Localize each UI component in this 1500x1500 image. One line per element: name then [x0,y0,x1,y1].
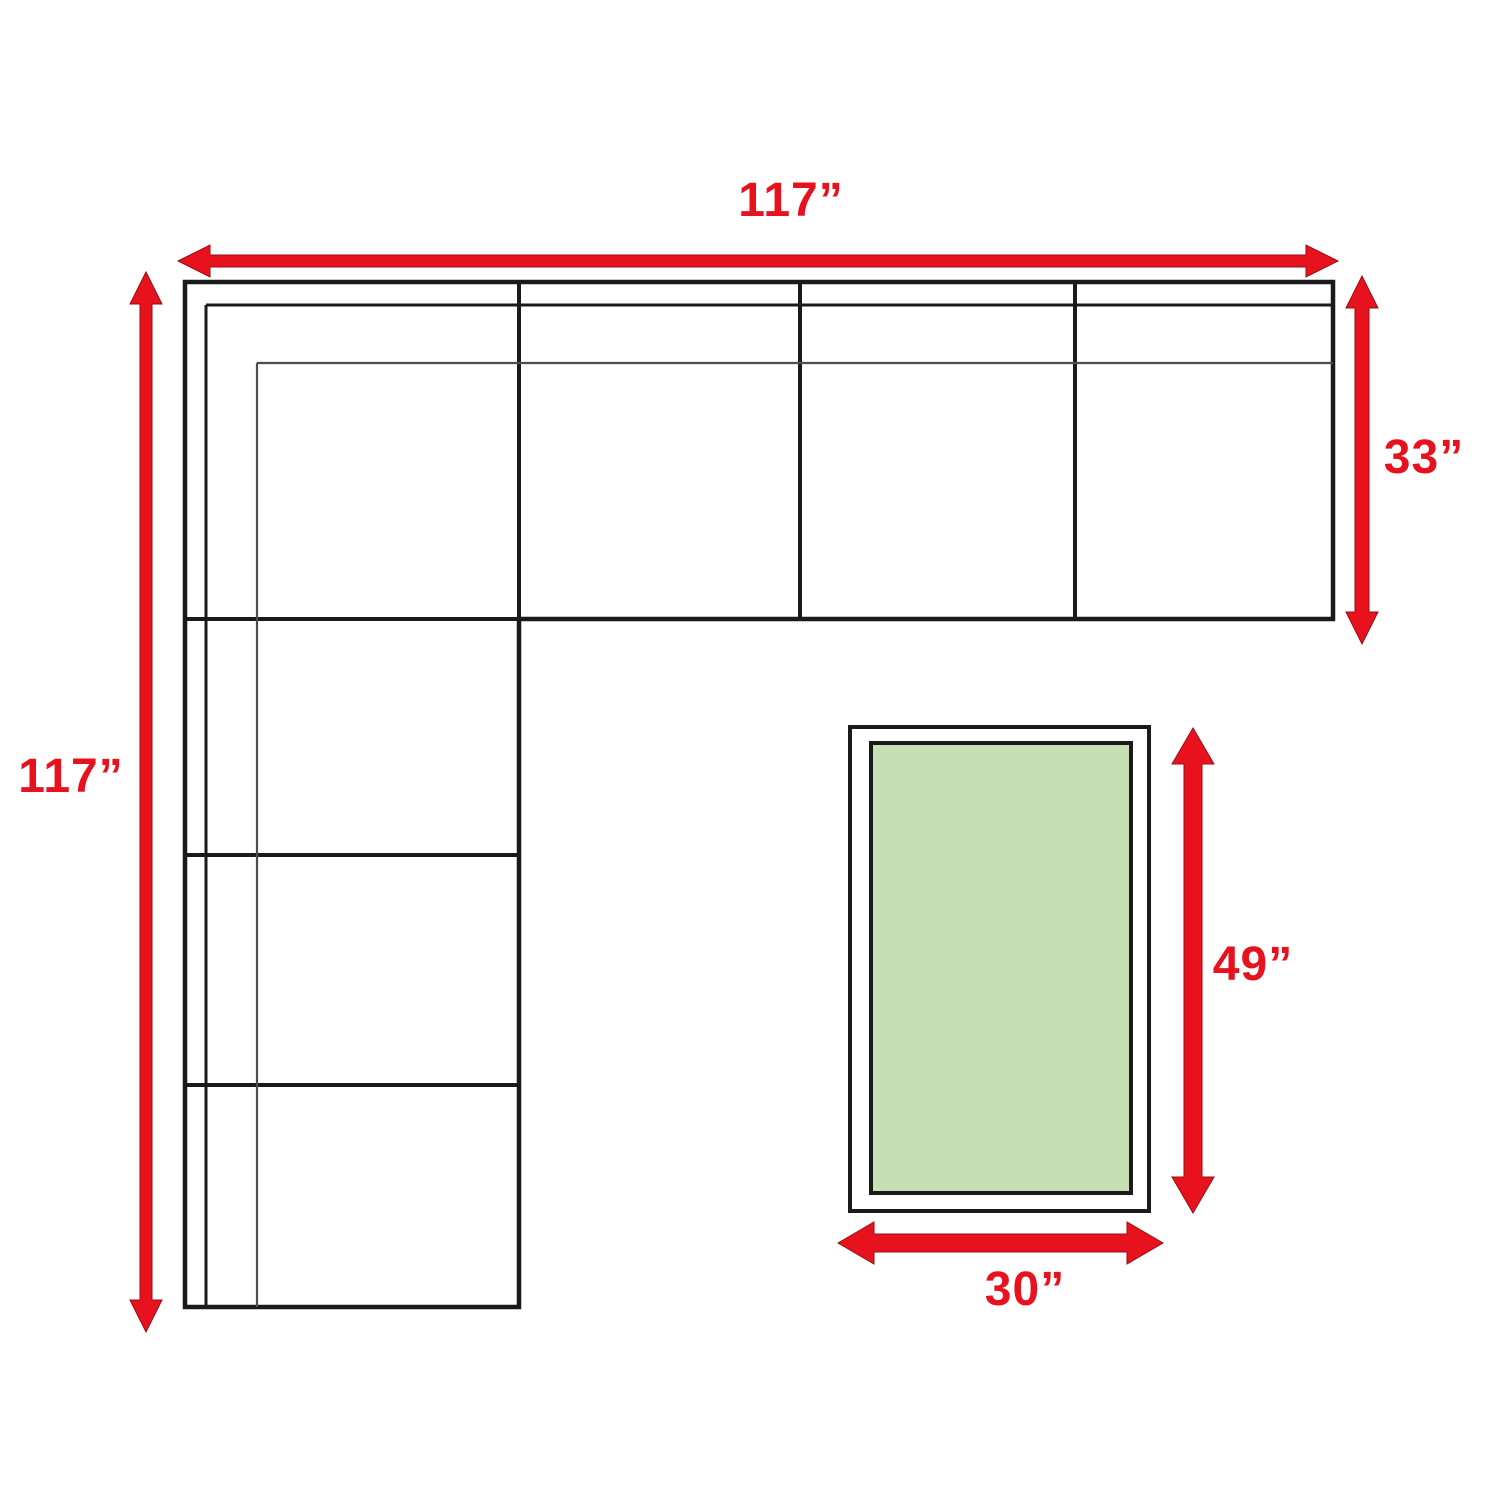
dimension-diagram: 117” 117” 33” 49” 30” [0,0,1500,1500]
arrow-sofa-width-top [178,245,1338,277]
sofa-l-outline [185,282,1333,1307]
sectional-sofa-outline [185,282,1333,1307]
label-sofa-depth-left: 117” [18,753,123,801]
arrow-sofa-depth-left [130,272,162,1332]
table-green-top [871,743,1131,1193]
arrow-table-length [1172,728,1214,1213]
arrow-table-width [838,1222,1163,1264]
label-table-width: 30” [985,1266,1065,1314]
label-section-depth-right: 33” [1384,434,1464,482]
label-sofa-width-top: 117” [738,177,843,225]
arrow-section-depth-right [1346,276,1378,644]
coffee-table-outline [850,727,1149,1211]
label-table-length: 49” [1213,941,1293,989]
